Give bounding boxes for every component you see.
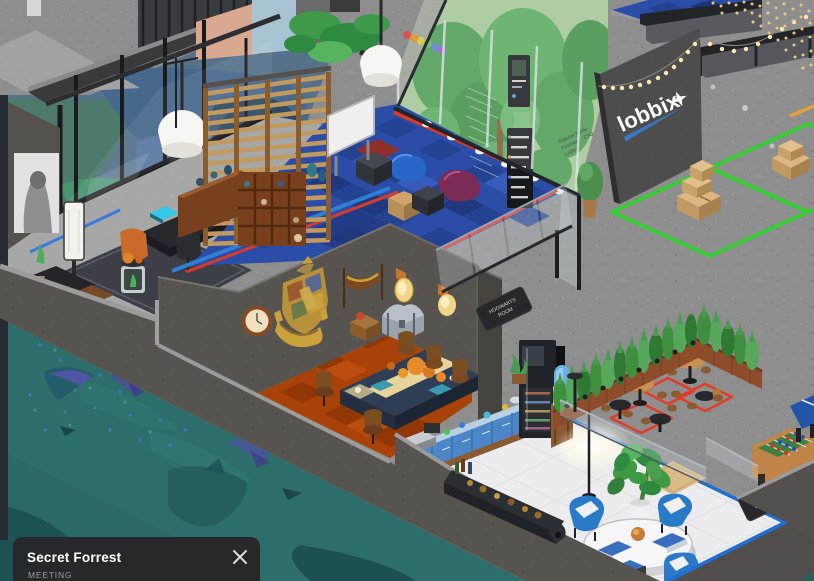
svg-text:Secret Forrest: Secret Forrest [27,550,122,565]
svg-text:MEETING: MEETING [28,570,72,580]
